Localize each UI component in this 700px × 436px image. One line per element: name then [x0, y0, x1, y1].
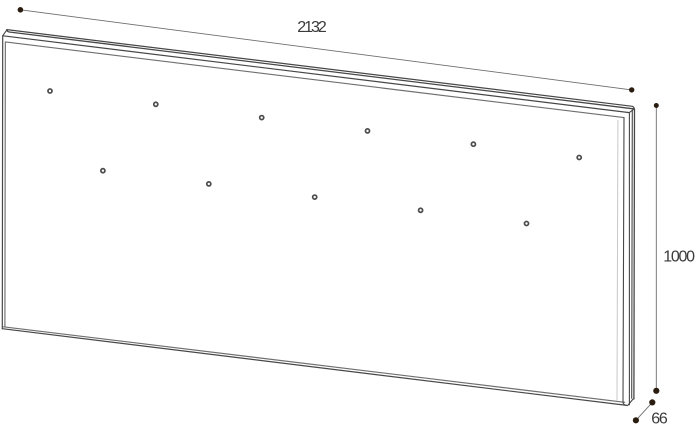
- svg-text:66: 66: [651, 411, 668, 428]
- svg-text:2132: 2132: [297, 19, 327, 36]
- svg-text:1000: 1000: [663, 249, 695, 266]
